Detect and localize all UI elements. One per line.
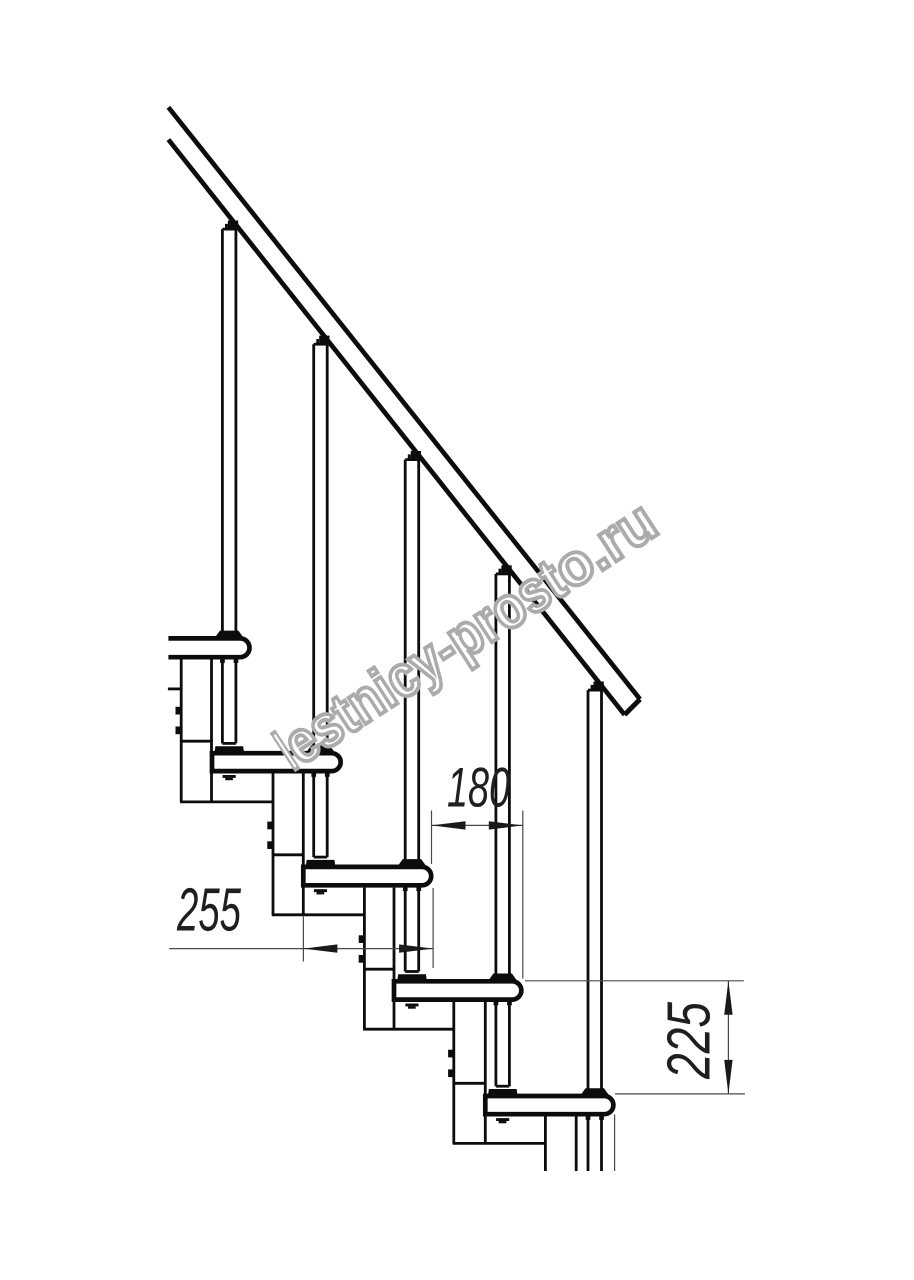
svg-text:180: 180 bbox=[447, 756, 510, 819]
svg-text:255: 255 bbox=[176, 876, 241, 944]
svg-text:225: 225 bbox=[655, 1001, 723, 1080]
